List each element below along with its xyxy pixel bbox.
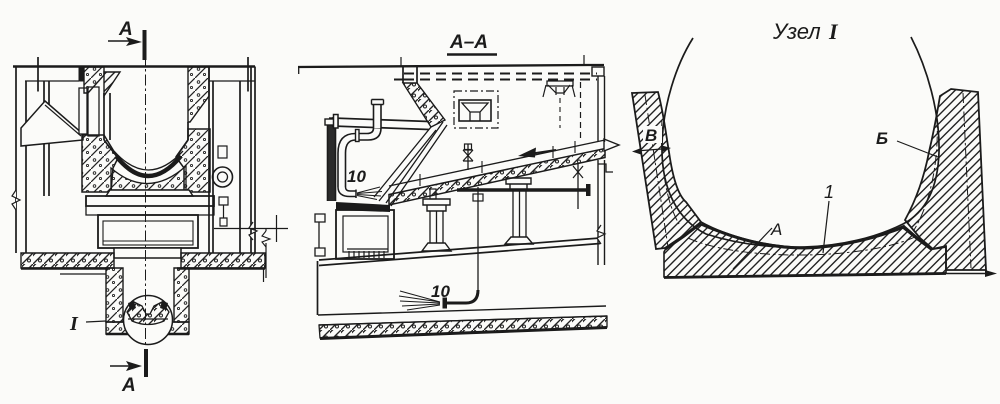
svg-text:Узел: Узел (772, 19, 821, 44)
svg-text:А: А (770, 220, 782, 239)
svg-text:В: В (645, 126, 657, 145)
svg-text:A–A: A–A (449, 32, 488, 53)
svg-text:I: I (69, 313, 79, 335)
svg-text:10: 10 (347, 167, 366, 186)
svg-text:A: A (118, 19, 133, 40)
svg-text:Б: Б (876, 129, 888, 148)
svg-text:10: 10 (431, 282, 450, 301)
svg-text:A: A (121, 375, 136, 396)
svg-text:I: I (828, 19, 839, 44)
svg-text:1: 1 (824, 182, 834, 202)
